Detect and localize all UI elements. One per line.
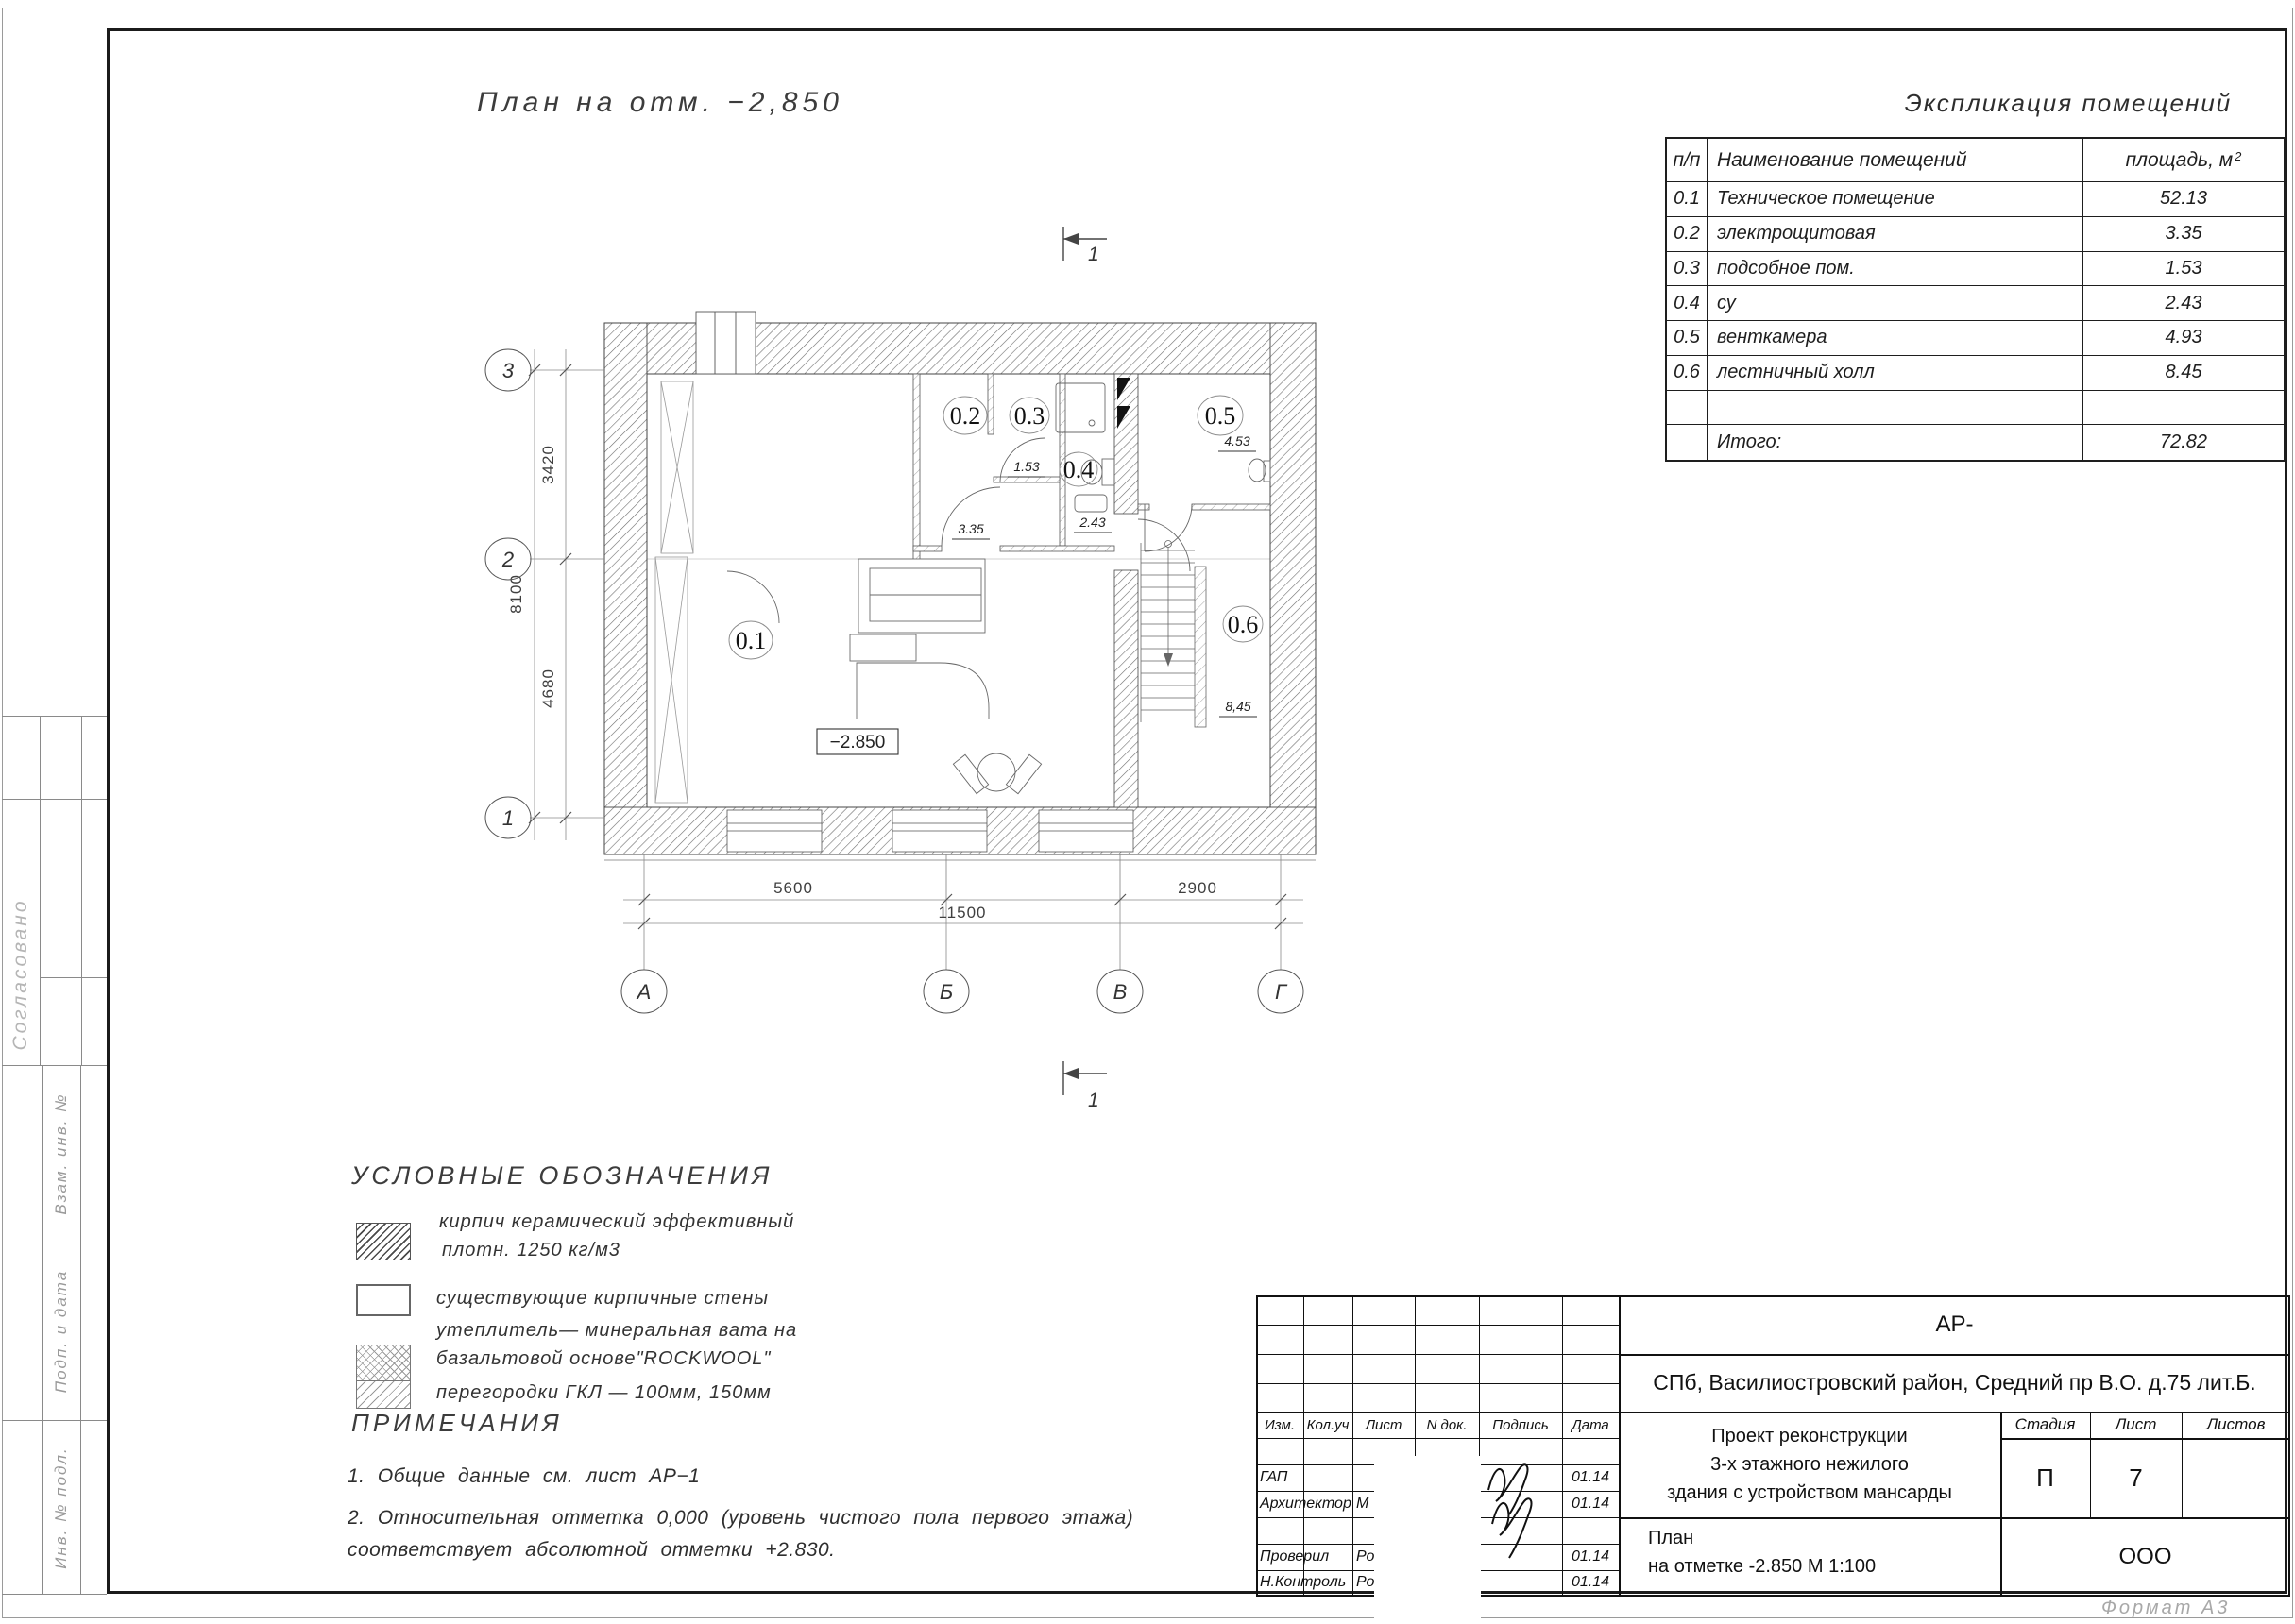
legend-swatch-insulation	[356, 1345, 411, 1382]
room-0-3: 0.3	[1014, 402, 1045, 430]
legend-item-brick-1: кирпич керамический эффективный	[439, 1211, 794, 1233]
table-cell: 0.5	[1667, 321, 1708, 356]
table-cell: 1.53	[2083, 252, 2284, 287]
strip-line	[42, 1065, 43, 1594]
wall-braces	[655, 381, 693, 803]
room-area-labels: 3.35 1.53 2.43 4.53 8,45	[952, 433, 1257, 717]
explication-title: Экспликация помещений	[1851, 89, 2286, 118]
signature-gap	[1481, 1456, 1562, 1560]
table-cell: 52.13	[2083, 182, 2284, 217]
drawing-sheet: Согласовано Взам. инв. № Подп. и дата Ин…	[0, 0, 2295, 1624]
room-0-2: 0.2	[950, 402, 981, 430]
table-cell: 8.45	[2083, 356, 2284, 391]
table-cell: 4.93	[2083, 321, 2284, 356]
dim-11500: 11500	[938, 904, 986, 922]
strip-line	[2, 799, 107, 800]
date-checked: 01.14	[1562, 1544, 1619, 1570]
level-mark-value: −2.850	[830, 733, 886, 753]
dim-4680: 4680	[539, 668, 557, 708]
axis-b: Б	[940, 980, 953, 1004]
table-cell	[1708, 391, 2083, 426]
doc-code: АР-	[1619, 1295, 2290, 1354]
table-cell	[1667, 391, 1708, 426]
axis-g: Г	[1275, 980, 1288, 1004]
sheets-label: Листов	[2182, 1412, 2290, 1438]
strip-label-inv: Инв. № подл.	[52, 1446, 71, 1569]
axis-2: 2	[501, 548, 514, 571]
col-ndok: N док.	[1415, 1412, 1479, 1438]
strip-line	[80, 1065, 81, 1594]
note-line-3: соответствует абсолютной отметки +2.830.	[348, 1539, 836, 1562]
col-koluch: Кол.уч	[1303, 1412, 1352, 1438]
table-cell: 0.1	[1667, 182, 1708, 217]
legend-item-insulation-2: базальтовой основе"ROCKWOOL"	[436, 1348, 772, 1370]
table-cell: 2.43	[2083, 286, 2284, 321]
col-podpis: Подпись	[1479, 1412, 1562, 1438]
col-header-name: Наименование помещений	[1708, 139, 2083, 182]
legend-title: УСЛОВНЫЕ ОБОЗНАЧЕНИЯ	[351, 1161, 773, 1191]
sheet-number: 7	[2090, 1438, 2182, 1517]
table-cell	[2083, 391, 2284, 426]
project-line-2: 3-х этажного нежилого	[1710, 1450, 1909, 1479]
section-label-bottom: 1	[1088, 1090, 1099, 1111]
table-cell: 0.6	[1667, 356, 1708, 391]
role-architect: Архитектор	[1260, 1491, 1354, 1517]
section-label-top: 1	[1088, 244, 1099, 265]
strip-line	[40, 977, 107, 978]
strip-line	[40, 716, 41, 1065]
explication-table: п/п Наименование помещений площадь, м2 0…	[1665, 137, 2286, 462]
axis-1: 1	[502, 806, 514, 830]
dim-2900: 2900	[1178, 879, 1217, 897]
floor-plan: −2.850 0.1 0.2 0.3 0.4 0.5 0.6 3.35 1.53…	[453, 170, 1407, 1142]
table-cell: 0.4	[1667, 286, 1708, 321]
room-label-text: 0.1 0.2 0.3 0.4 0.5 0.6	[736, 402, 1259, 654]
table-cell-total-label: Итого:	[1708, 425, 2083, 460]
format-note: Формат А3	[2101, 1598, 2230, 1619]
col-data: Дата	[1562, 1412, 1619, 1438]
section-marker-top	[1063, 227, 1107, 261]
sheet-title-line-1: План	[1648, 1524, 1988, 1552]
col-header-area: площадь, м2	[2083, 139, 2284, 182]
note-line-1: 1. Общие данные см. лист АР−1	[348, 1465, 700, 1488]
strip-line	[2, 716, 107, 717]
area-0-3: 1.53	[1013, 459, 1039, 474]
area-0-6: 8,45	[1225, 699, 1250, 714]
signature-architect	[1492, 1498, 1531, 1558]
col-header-num: п/п	[1667, 139, 1708, 182]
project-line-3: здания с устройством мансарды	[1667, 1479, 1952, 1507]
date-architect: 01.14	[1562, 1491, 1619, 1517]
strip-label-approved: Согласовано	[9, 898, 32, 1050]
notes-title: ПРИМЕЧАНИЯ	[351, 1409, 563, 1438]
table-cell: 0.2	[1667, 217, 1708, 252]
organization: ООО	[2000, 1517, 2290, 1597]
table-cell: лестничный холл	[1708, 356, 2083, 391]
strip-line	[40, 888, 107, 888]
strip-line	[81, 716, 82, 1065]
area-0-5: 4.53	[1224, 433, 1249, 448]
table-cell: электрощитовая	[1708, 217, 2083, 252]
legend-swatch-brick	[356, 1223, 411, 1260]
dim-5600: 5600	[773, 879, 813, 897]
table-cell: Техническое помещение	[1708, 182, 2083, 217]
table-cell: подсобное пом.	[1708, 252, 2083, 287]
col-list: Лист	[1352, 1412, 1415, 1438]
legend-item-brick-2: плотн. 1250 кг/м3	[442, 1240, 620, 1261]
strip-line	[2, 1065, 107, 1066]
area-0-2: 3.35	[958, 521, 983, 536]
strip-line	[2, 1420, 107, 1421]
table-cell: су	[1708, 286, 2083, 321]
role-gap: ГАП	[1260, 1464, 1351, 1491]
legend-swatch-gkl	[356, 1380, 411, 1409]
table-cell: 0.3	[1667, 252, 1708, 287]
left-dimension-text: 3420 4680 8100	[507, 445, 557, 708]
sheet-title-line-2: на отметке -2.850 М 1:100	[1648, 1552, 1988, 1581]
left-dimensions	[529, 349, 604, 840]
level-mark: −2.850	[817, 729, 898, 754]
area-0-4: 2.43	[1079, 515, 1105, 530]
strip-line	[2, 1243, 107, 1243]
plan-title: План на отм. −2,850	[477, 87, 843, 119]
tb-line	[1256, 1325, 1619, 1326]
legend-item-insulation-1: утеплитель— минеральная вата на	[436, 1320, 797, 1342]
staircase	[1141, 541, 1206, 728]
date-gap: 01.14	[1562, 1464, 1619, 1491]
room-0-1: 0.1	[736, 627, 767, 654]
strip-label-vzam: Взам. инв. №	[52, 1092, 71, 1214]
windows	[727, 810, 1133, 852]
room-0-4: 0.4	[1063, 456, 1095, 483]
table-cell: 3.35	[2083, 217, 2284, 252]
interior-bearing-wall	[1114, 374, 1138, 807]
project-name: Проект реконструкции 3-х этажного нежило…	[1619, 1416, 2000, 1513]
axis-v: В	[1113, 980, 1128, 1004]
table-cell: венткамера	[1708, 321, 2083, 356]
col-izm: Изм.	[1256, 1412, 1303, 1438]
table-cell	[1667, 425, 1708, 460]
tb-line	[1352, 1295, 1353, 1597]
legend-swatch-existing	[356, 1284, 411, 1316]
room-0-6: 0.6	[1228, 611, 1259, 638]
dim-3420: 3420	[539, 445, 557, 484]
room-0-5: 0.5	[1205, 402, 1236, 430]
role-ncontrol: Н.Контроль	[1260, 1570, 1364, 1595]
legend-item-gkl: перегородки ГКЛ — 100мм, 150мм	[436, 1382, 772, 1404]
legend-item-existing: существующие кирпичные стены	[436, 1288, 769, 1310]
section-marker-bottom	[1063, 1061, 1107, 1095]
area-header-sup: 2	[2235, 149, 2241, 163]
object-address: СПб, Василиостровский район, Средний пр …	[1619, 1354, 2290, 1412]
tb-line	[1256, 1383, 1619, 1384]
redaction-overlay	[1374, 1456, 1481, 1624]
room-labels	[729, 396, 1263, 659]
strip-line	[2, 1594, 107, 1595]
bottom-dimension-text: 5600 2900 11500	[773, 879, 1217, 922]
role-checked: Проверил	[1260, 1544, 1351, 1570]
tb-line	[1256, 1354, 1619, 1355]
stage-label: Стадия	[2000, 1412, 2090, 1438]
note-line-2: 2. Относительная отметка 0,000 (уровень …	[348, 1507, 1133, 1530]
sheet-label: Лист	[2090, 1412, 2182, 1438]
table-cell-total-value: 72.82	[2083, 425, 2284, 460]
stage-value: П	[2000, 1438, 2090, 1517]
tb-line	[1256, 1438, 1619, 1439]
vent-shaft	[696, 312, 756, 374]
area-header-text: площадь, м	[2126, 149, 2234, 172]
date-ncontrol: 01.14	[1562, 1570, 1619, 1595]
sheets-total	[2182, 1438, 2290, 1517]
strip-label-podp: Подп. и дата	[52, 1270, 71, 1393]
axis-a: А	[636, 980, 652, 1004]
axis-3: 3	[502, 359, 515, 382]
project-line-1: Проект реконструкции	[1711, 1422, 1907, 1450]
bottom-axis-bubbles	[621, 970, 1303, 1013]
